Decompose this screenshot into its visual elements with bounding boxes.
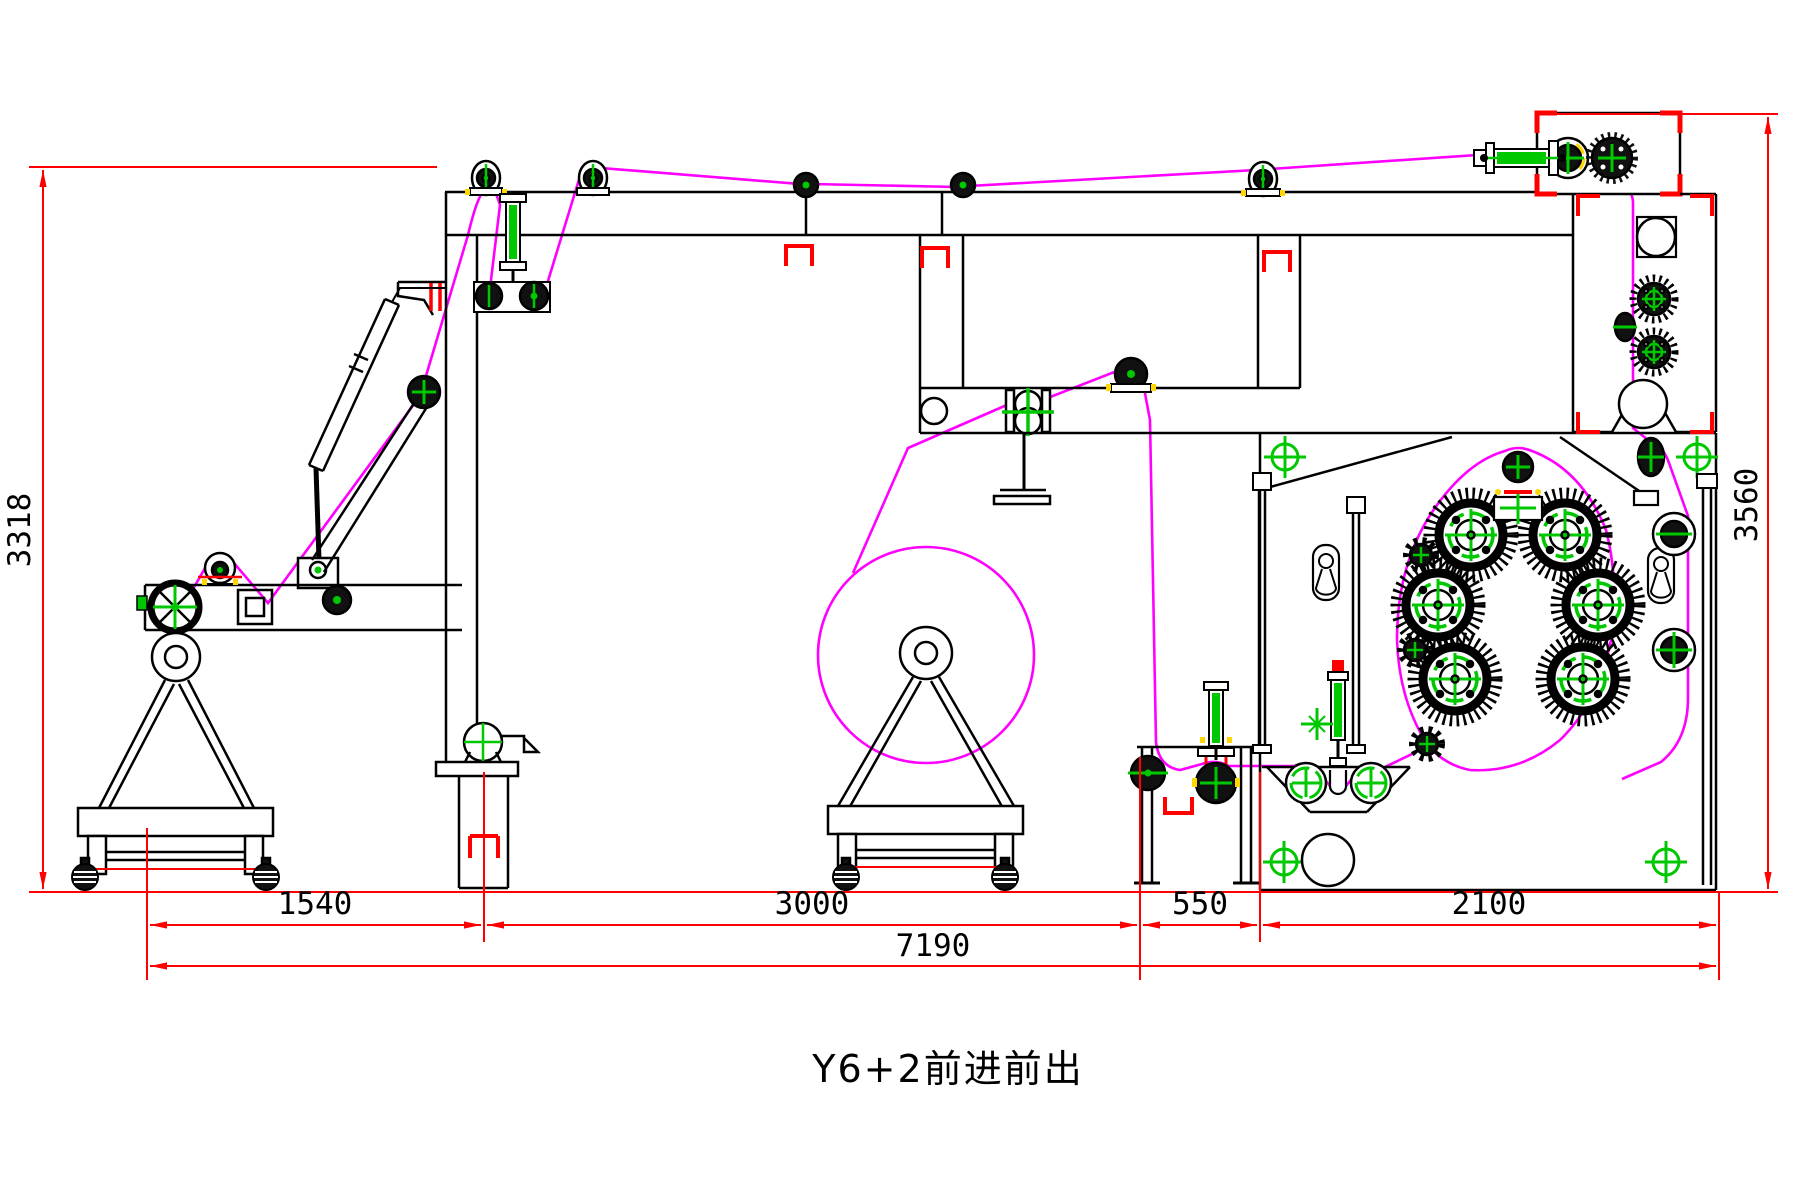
keyhole-slot [1313, 545, 1339, 600]
machine-layout-drawing: 1540 3000 550 2100 7190 3318 3560 Y6+2前进… [0, 0, 1800, 1200]
keyhole-slot [1648, 548, 1674, 603]
crosshair-mark [1263, 841, 1305, 883]
valve-mark [1301, 708, 1333, 740]
hopper-roller [1286, 763, 1326, 803]
side-roller [1653, 629, 1695, 671]
pin-roller-cluster [1397, 452, 1639, 720]
hopper-roller [1351, 763, 1391, 803]
clamp-mark [1165, 797, 1192, 813]
crosshair-mark [1676, 436, 1718, 478]
dim-label-2100: 2100 [1452, 886, 1527, 922]
clamp-mark [1264, 252, 1290, 272]
dim-label-550: 550 [1172, 886, 1228, 922]
dim-label-3318: 3318 [2, 493, 38, 568]
dim-label-3000: 3000 [775, 886, 850, 922]
machine-layer [72, 113, 1718, 890]
top-right-unit [1474, 113, 1716, 432]
horizontal-cylinder [1474, 141, 1566, 175]
cad-drawing-page: 1540 3000 550 2100 7190 3318 3560 Y6+2前进… [0, 0, 1800, 1200]
clamp-mark [922, 248, 948, 268]
side-roller [1653, 513, 1695, 555]
center-roll-stand [828, 627, 1023, 890]
crosshair-mark [1645, 841, 1687, 883]
dim-label-7190: 7190 [896, 928, 971, 964]
dim-label-3560: 3560 [1729, 468, 1765, 543]
right-panel [1573, 194, 1716, 432]
exit-knurl-roller [1412, 729, 1442, 759]
drawing-title: Y6+2前进前出 [811, 1047, 1083, 1091]
dancer-cylinder-unit [474, 194, 550, 312]
crosshair-mark [1264, 436, 1306, 478]
left-unwind-trolley [72, 633, 279, 890]
dim-label-1540: 1540 [278, 886, 353, 922]
hopper [1262, 660, 1410, 812]
clamp-mark [786, 246, 812, 266]
dimension-labels: 1540 3000 550 2100 7190 3318 3560 Y6+2前进… [2, 468, 1765, 1091]
top-beam [445, 192, 1573, 235]
tilt-cylinder [298, 288, 446, 588]
infeed-frame [1128, 682, 1259, 883]
middle-beam-unit [786, 235, 1300, 504]
